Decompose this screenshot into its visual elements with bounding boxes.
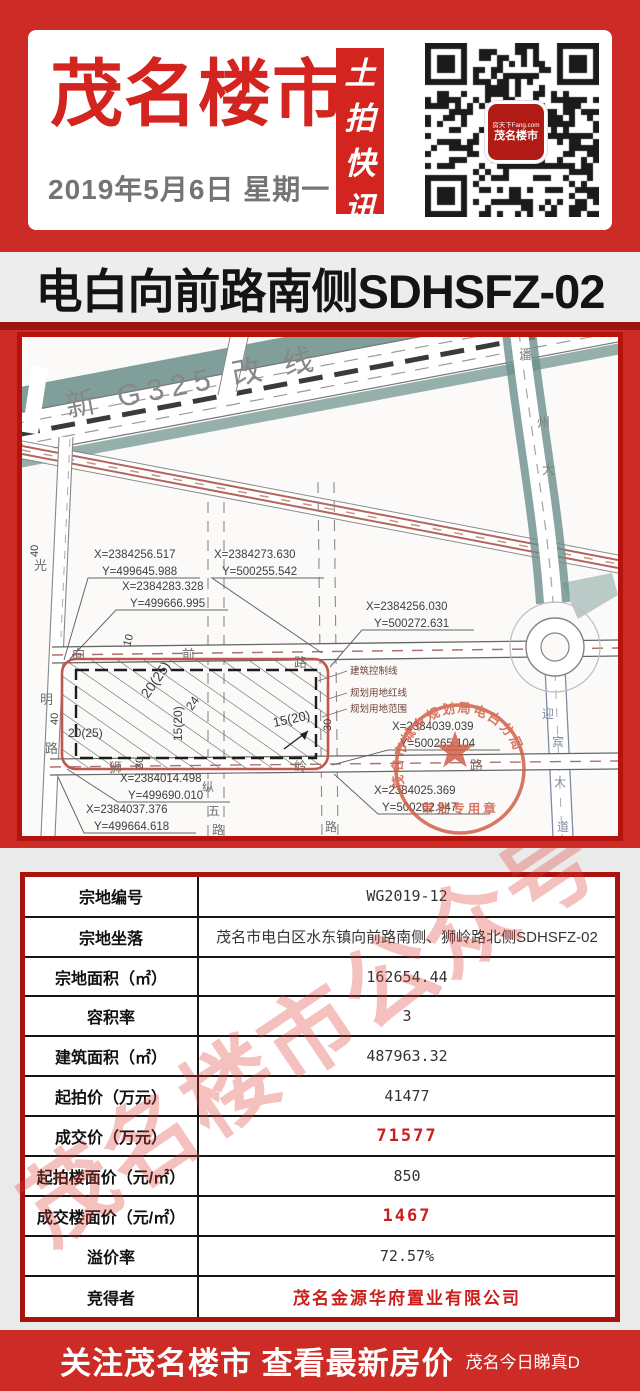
road-char: 道 xyxy=(557,820,569,834)
dim-text: 40 xyxy=(29,545,41,557)
road-char: 路 xyxy=(294,655,307,670)
row-value: 162654.44 xyxy=(198,957,618,997)
row-label: 成交价（万元） xyxy=(23,1116,199,1156)
qr-center-logo: 房天下Fang.com 茂名楼市 xyxy=(485,101,547,163)
stamp-bottom-text: 审批专用章 xyxy=(421,801,499,816)
road-char: 路 xyxy=(212,822,224,836)
coord-x: X=2384037.376 xyxy=(86,804,168,816)
row-label: 宗地面积（㎡） xyxy=(23,957,199,997)
row-value: 41477 xyxy=(198,1076,618,1116)
divider-bar xyxy=(0,322,640,330)
road-char: 路 xyxy=(325,819,337,834)
road-char: 州 xyxy=(537,415,550,430)
row-value-deal-price: 71577 xyxy=(198,1116,618,1156)
qr-code: 房天下Fang.com 茂名楼市 xyxy=(420,38,604,222)
road-char: 明 xyxy=(40,692,53,707)
row-value-floor-price: 1467 xyxy=(198,1196,618,1236)
row-value-winner: 茂名金源华府置业有限公司 xyxy=(198,1276,618,1320)
table-row: 竞得者 茂名金源华府置业有限公司 xyxy=(23,1276,618,1320)
land-auction-banner: 土 拍 快 讯 xyxy=(336,48,384,214)
qr-logo-name: 茂名楼市 xyxy=(494,130,538,143)
table-row: 宗地面积（㎡） 162654.44 xyxy=(23,957,618,997)
planning-map: 新 G325 改 线 xyxy=(17,332,623,841)
date-text: 2019年5月6日 星期一 xyxy=(48,168,330,208)
row-label: 宗地编号 xyxy=(23,875,199,917)
brand-title: 茂名楼市 xyxy=(50,58,346,131)
coord-x: X=2384256.517 xyxy=(94,549,176,561)
coord-y: Y=499645.988 xyxy=(102,566,177,578)
row-value: WG2019-12 xyxy=(198,875,618,917)
coord-y: Y=499666.995 xyxy=(130,598,205,610)
coord-x: X=2384273.630 xyxy=(214,549,296,561)
header-card: 茂名楼市 2019年5月6日 星期一 土 拍 快 讯 房天下Fang.com 茂… xyxy=(28,30,612,230)
dim-text: 30 xyxy=(134,757,146,769)
coord-x: X=2384014.498 xyxy=(120,773,202,785)
coord-y: Y=500272.631 xyxy=(374,618,449,630)
road-char: 纵 xyxy=(202,780,214,794)
coord-y: Y=500255.542 xyxy=(222,566,297,578)
header-band: 茂名楼市 2019年5月6日 星期一 土 拍 快 讯 房天下Fang.com 茂… xyxy=(0,0,640,252)
road-char: 迎 xyxy=(542,707,554,721)
table-row: 成交价（万元） 71577 xyxy=(23,1116,618,1156)
road-char: 大 xyxy=(542,462,555,477)
row-label: 起拍价（万元） xyxy=(23,1076,199,1116)
coord-x: X=2384256.030 xyxy=(366,601,448,613)
table-row: 容积率 3 xyxy=(23,996,618,1036)
row-label: 成交楼面价（元/㎡） xyxy=(23,1196,199,1236)
legend-item: 建筑控制线 xyxy=(350,665,398,677)
parcel-detail-table: 宗地编号 WG2019-12 宗地坐落 茂名市电白区水东镇向前路南侧、狮岭路北侧… xyxy=(20,872,620,1322)
table-row: 起拍楼面价（元/㎡） 850 xyxy=(23,1156,618,1196)
road-char: 宾 xyxy=(552,734,564,749)
row-value: 850 xyxy=(198,1156,618,1196)
footer-band: 关注茂名楼市 查看最新房价 茂名今日睇真D xyxy=(0,1330,640,1391)
road-char: 光 xyxy=(34,558,47,573)
table-row: 建筑面积（㎡） 487963.32 xyxy=(23,1036,618,1076)
legend-labels: 建筑控制线 规划用地红线 规划用地范围 xyxy=(318,665,408,717)
guangming-road xyxy=(41,437,73,836)
table-row: 宗地编号 WG2019-12 xyxy=(23,875,618,917)
qr-logo-brand: 房天下Fang.com xyxy=(493,121,540,129)
road-char: 大 xyxy=(554,775,566,789)
legend-item: 规划用地红线 xyxy=(350,687,408,699)
road-char: 五 xyxy=(208,804,220,818)
dim-text: 30 xyxy=(322,719,334,731)
road-char: 岭 xyxy=(294,759,307,774)
table-row: 起拍价（万元） 41477 xyxy=(23,1076,618,1116)
coord-y: Y=499664.618 xyxy=(94,821,169,833)
dim-text: 20(25) xyxy=(68,726,103,740)
table-row: 宗地坐落 茂名市电白区水东镇向前路南侧、狮岭路北侧SDHSFZ-02 xyxy=(23,917,618,957)
road-char: 路 xyxy=(470,758,483,773)
banner-char: 拍 xyxy=(345,93,376,138)
cadastral-drawing: 新 G325 改 线 xyxy=(22,337,618,836)
map-section: 新 G325 改 线 xyxy=(0,330,640,848)
row-label: 容积率 xyxy=(23,996,199,1036)
row-label: 竞得者 xyxy=(23,1276,199,1320)
row-label: 宗地坐落 xyxy=(23,917,199,957)
detail-section: 宗地编号 WG2019-12 宗地坐落 茂名市电白区水东镇向前路南侧、狮岭路北侧… xyxy=(0,848,640,1330)
road-char: 前 xyxy=(182,647,195,662)
row-value: 487963.32 xyxy=(198,1036,618,1076)
banner-char: 讯 xyxy=(345,183,376,228)
row-label: 溢价率 xyxy=(23,1236,199,1276)
panzhou-avenue xyxy=(519,337,618,619)
land-auction-poster: { "header": { "brand": "茂名楼市", "date": "… xyxy=(0,0,640,1391)
row-label: 建筑面积（㎡） xyxy=(23,1036,199,1076)
headline-text: 电白向前路南侧SDHSFZ-02 xyxy=(36,253,605,322)
headline-bar: 电白向前路南侧SDHSFZ-02 xyxy=(0,252,640,322)
banner-char: 土 xyxy=(345,48,376,93)
banner-char: 快 xyxy=(345,138,376,183)
dim-text: 40 xyxy=(49,713,61,725)
coord-x: X=2384025.369 xyxy=(374,785,456,797)
footer-watermark: 茂名今日睇真D xyxy=(466,1348,580,1373)
table-row: 成交楼面价（元/㎡） 1467 xyxy=(23,1196,618,1236)
dim-text: 15(20) xyxy=(171,706,185,741)
row-value: 3 xyxy=(198,996,618,1036)
row-label: 起拍楼面价（元/㎡） xyxy=(23,1156,199,1196)
row-value: 72.57% xyxy=(198,1236,618,1276)
row-value: 茂名市电白区水东镇向前路南侧、狮岭路北侧SDHSFZ-02 xyxy=(198,917,618,957)
road-char: 潘 xyxy=(519,347,532,362)
coord-y: Y=499690.010 xyxy=(128,790,203,802)
table-row: 溢价率 72.57% xyxy=(23,1236,618,1276)
footer-slogan: 关注茂名楼市 查看最新房价 xyxy=(60,1338,454,1383)
legend-item: 规划用地范围 xyxy=(350,703,407,715)
coord-x: X=2384283.328 xyxy=(122,581,204,593)
road-char: 路 xyxy=(45,741,58,756)
